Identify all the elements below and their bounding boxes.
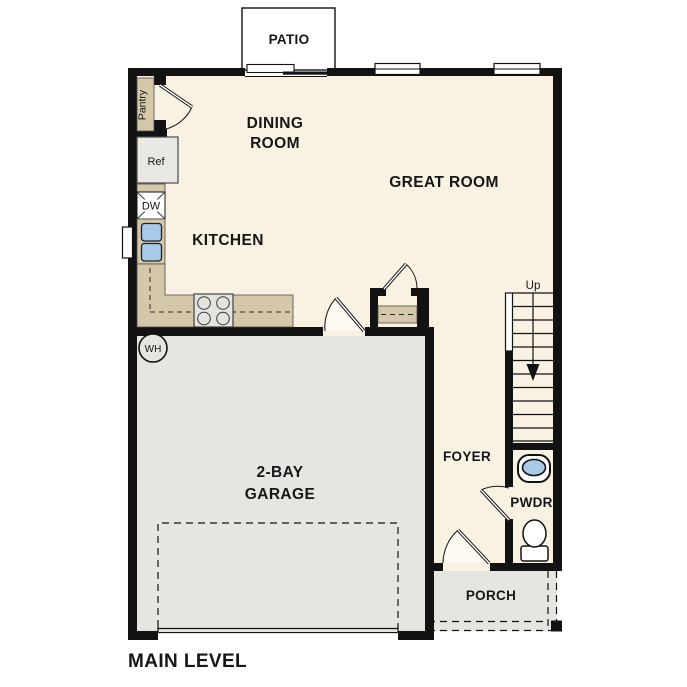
- refrigerator: Ref: [137, 137, 178, 183]
- window-kitchen-sink: [123, 227, 133, 258]
- floorplan-page: PATIO: [0, 0, 687, 687]
- sink-bowl-2: [142, 244, 162, 262]
- stair-railing: [506, 293, 513, 351]
- porch-post: [551, 621, 562, 632]
- dishwasher-label: DW: [142, 201, 161, 213]
- closet-shelf: [378, 306, 417, 323]
- window-top-2: [494, 64, 540, 75]
- garage-label-line2: GARAGE: [245, 486, 315, 503]
- refrigerator-label: Ref: [147, 156, 165, 168]
- water-heater-label: WH: [145, 344, 162, 355]
- powder-room-label: PWDR: [510, 495, 552, 510]
- patio-area: PATIO: [242, 8, 335, 70]
- kitchen-label: KITCHEN: [192, 232, 264, 249]
- dishwasher: DW: [137, 184, 165, 219]
- foyer-label: FOYER: [443, 449, 491, 464]
- dining-room-label-line1: DINING: [247, 115, 304, 132]
- dining-room-label-line2: ROOM: [250, 135, 300, 152]
- plan-title: MAIN LEVEL: [128, 651, 247, 672]
- kitchen-sink: [137, 219, 165, 264]
- porch-label: PORCH: [466, 588, 516, 603]
- water-heater: WH: [139, 334, 167, 362]
- great-room-label: GREAT ROOM: [389, 174, 499, 191]
- garage-label-line1: 2-BAY: [256, 464, 303, 481]
- sink-bowl-1: [142, 224, 162, 242]
- window-top-1: [375, 64, 420, 75]
- patio-label: PATIO: [269, 32, 310, 47]
- stairs-up-label: Up: [526, 280, 541, 292]
- range: [194, 294, 233, 327]
- garage-floor: [137, 336, 425, 631]
- pantry-label: Pantry: [137, 89, 149, 120]
- floor-plan: PATIO: [0, 0, 687, 687]
- pantry: Pantry: [137, 78, 155, 131]
- powder-sink: [518, 455, 550, 482]
- toilet: [521, 520, 548, 561]
